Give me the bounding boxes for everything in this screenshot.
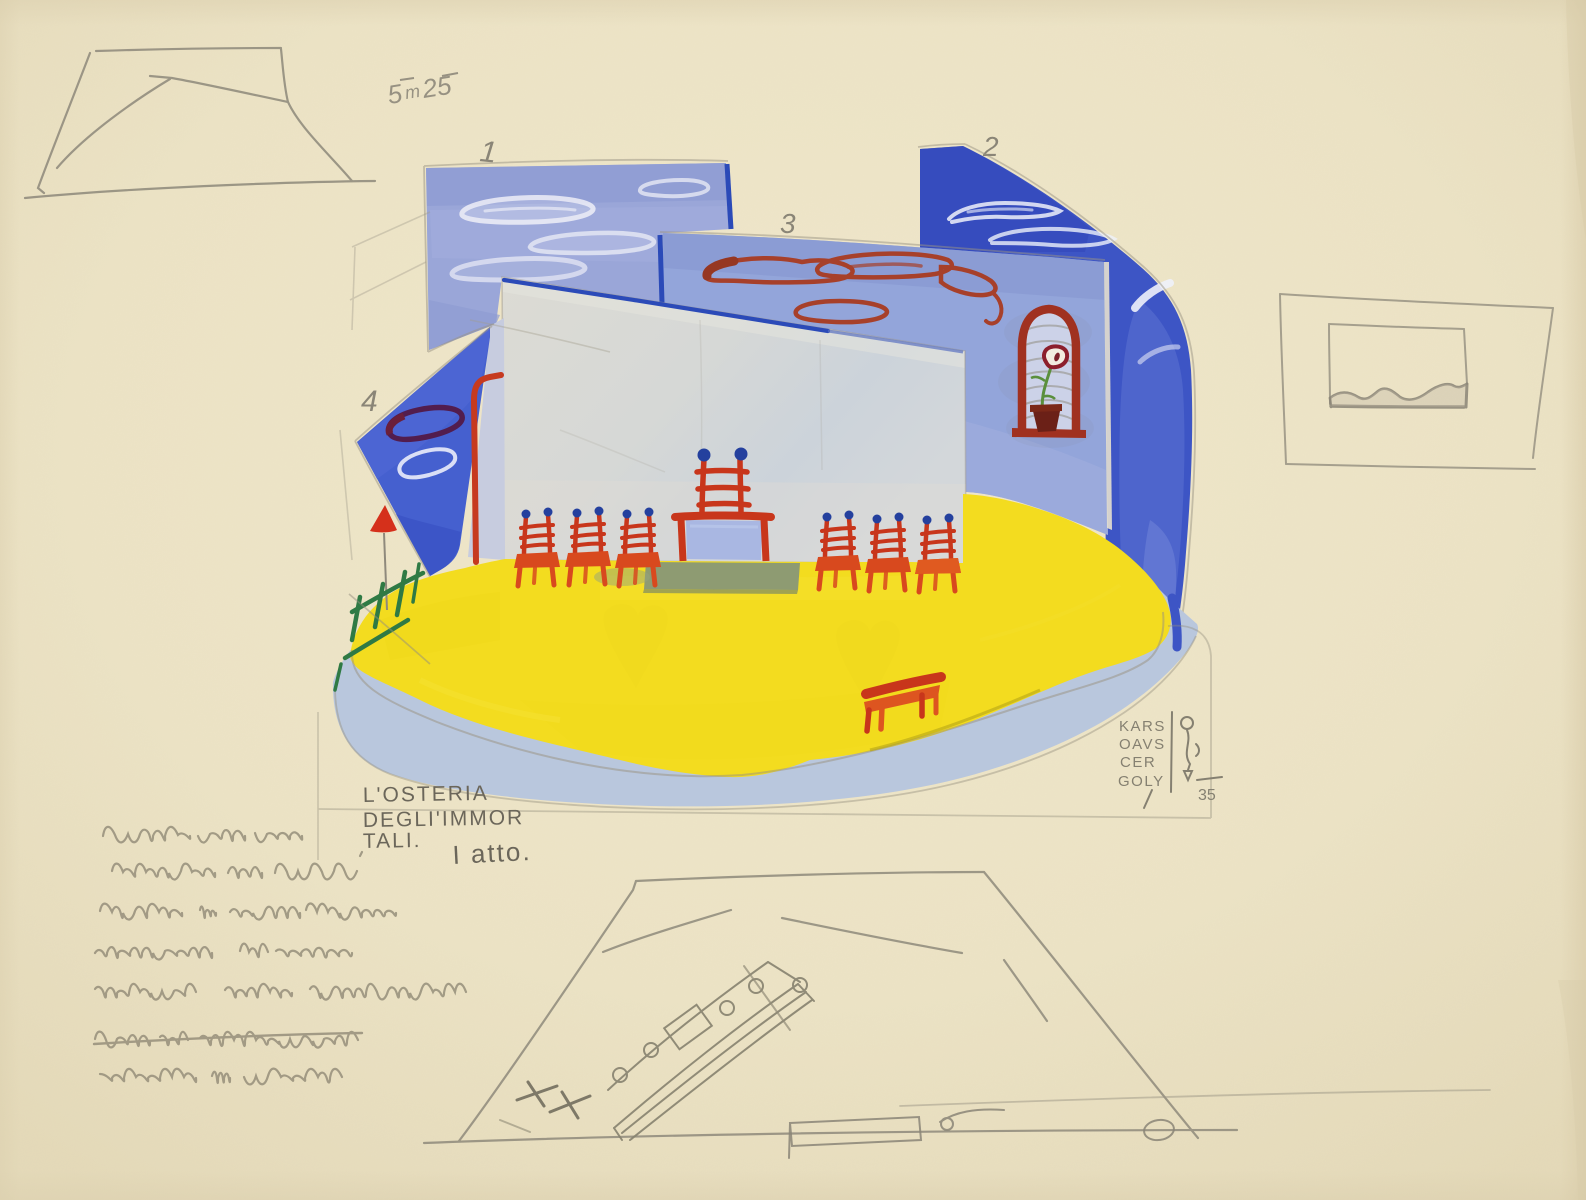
svg-text:DEGLI'IMMOR: DEGLI'IMMOR (363, 806, 525, 832)
svg-text:OAVS: OAVS (1119, 736, 1166, 753)
svg-text:3: 3 (780, 208, 796, 239)
svg-text:KARS: KARS (1119, 718, 1166, 735)
svg-text:TALI.: TALI. (363, 829, 422, 853)
svg-text:GOLY: GOLY (1118, 773, 1165, 790)
svg-text:4: 4 (361, 385, 378, 418)
svg-text:I atto.: I atto. (452, 836, 533, 870)
svg-text:35: 35 (1198, 787, 1216, 804)
svg-text:1: 1 (478, 135, 498, 170)
svg-text:L'OSTERIA: L'OSTERIA (363, 782, 489, 807)
svg-text:CER: CER (1120, 754, 1156, 771)
svg-text:m: m (403, 81, 421, 103)
